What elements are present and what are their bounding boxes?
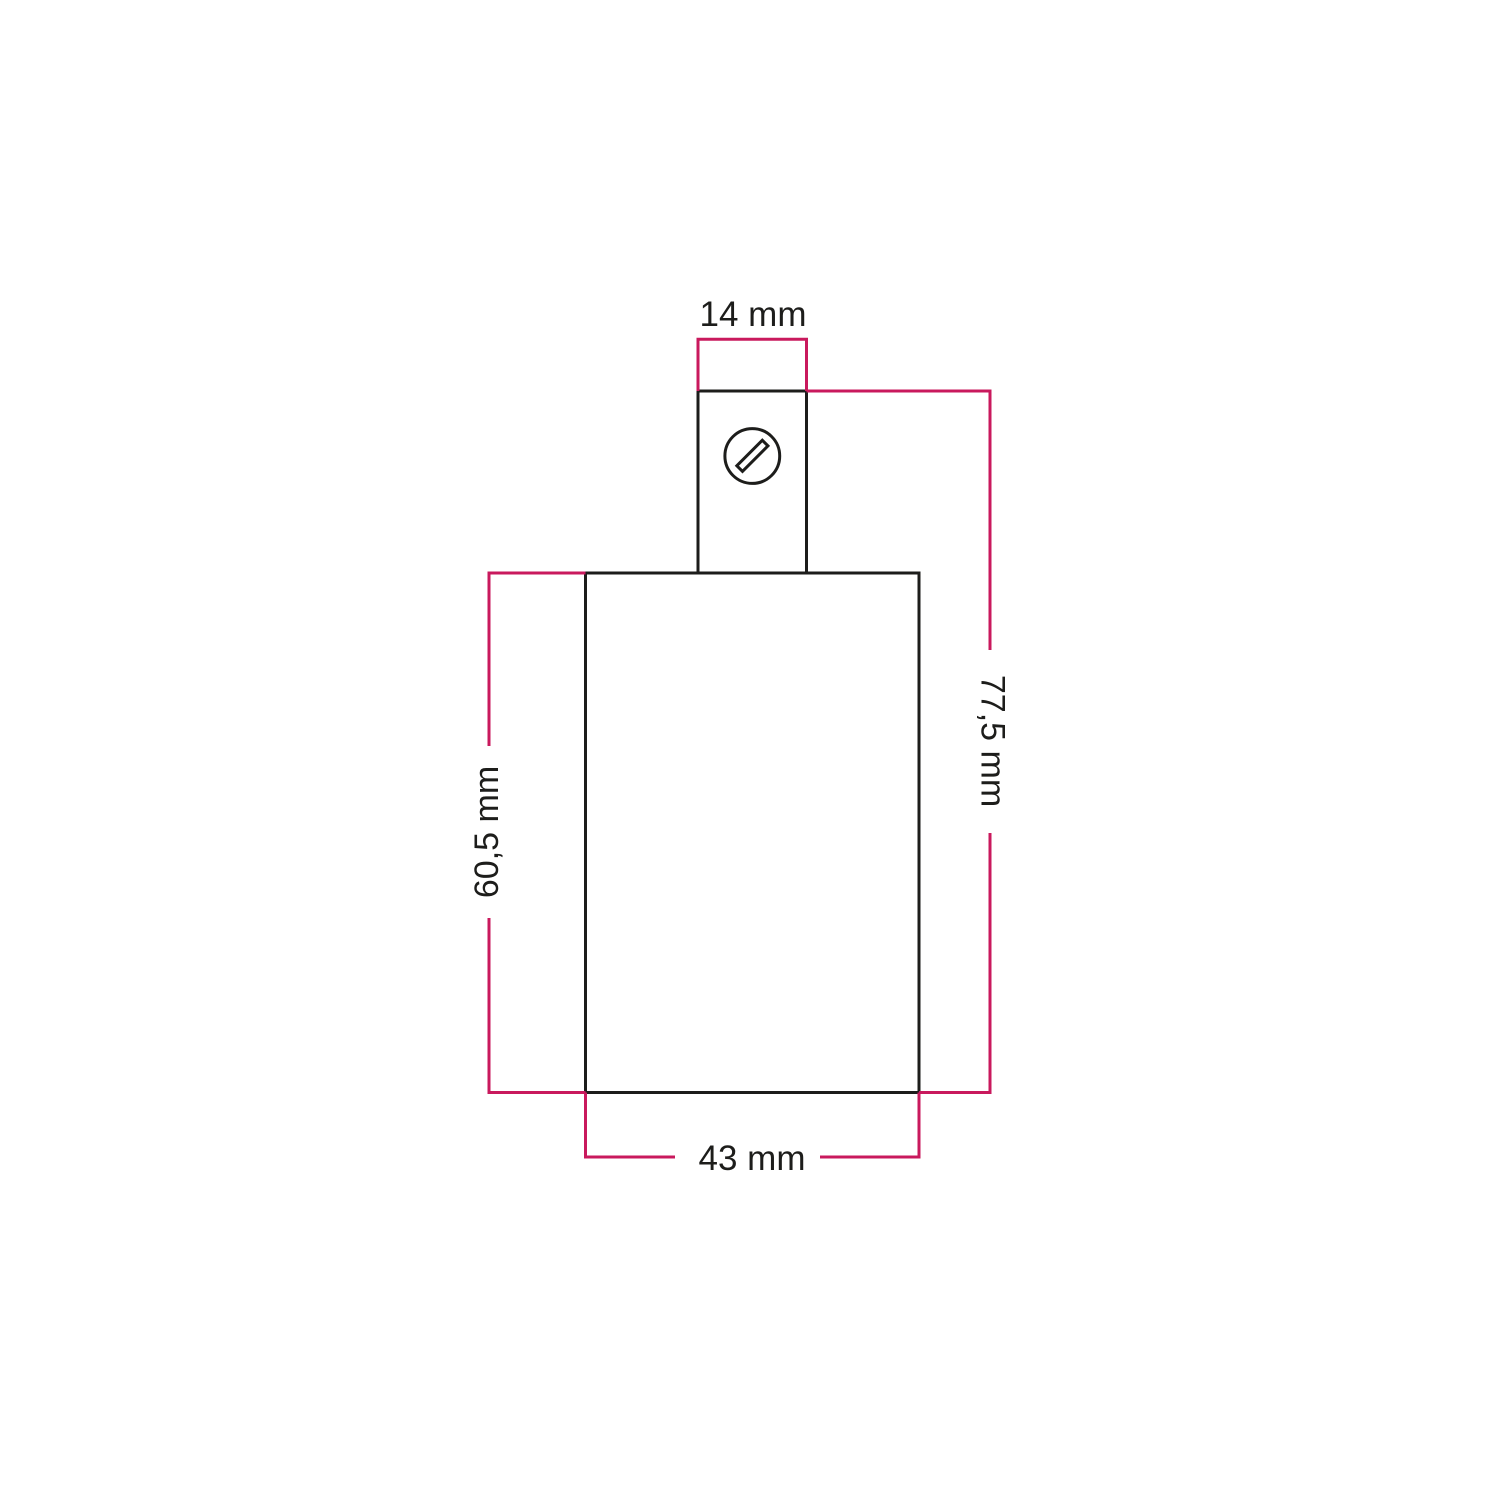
svg-text:77,5 mm: 77,5 mm (974, 675, 1012, 807)
svg-text:14 mm: 14 mm (700, 295, 807, 334)
svg-text:60,5 mm: 60,5 mm (468, 766, 506, 898)
svg-text:43 mm: 43 mm (699, 1139, 806, 1178)
